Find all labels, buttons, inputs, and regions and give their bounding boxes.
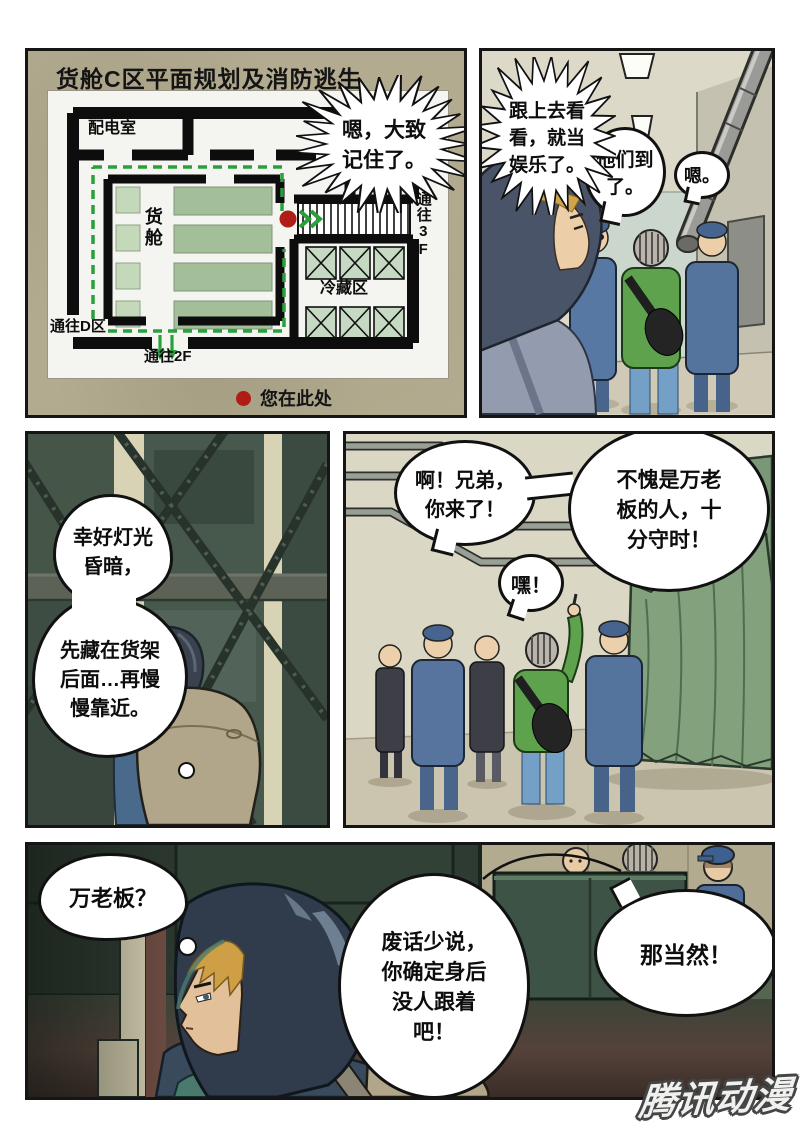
comic-page: 货舱C区平面规划及消防逃生 (0, 0, 800, 1132)
panel-meeting: 啊！兄弟，你来了！ 不愧是万老板的人，十分守时！ 嘿！ (343, 431, 775, 828)
label-cold-zone: 冷藏区 (320, 281, 368, 298)
panel-hallway: 跟上去看看，就当娱乐了。 他们到了。 嗯。 (479, 48, 775, 418)
speech-burst-text: 嗯，大致记住了。 (296, 75, 467, 213)
speech-bubble-of-course: 那当然！ (594, 889, 775, 1017)
label-to-d-zone: 通往D区 (48, 319, 108, 335)
panel-dark-approach: 万老板？ 废话少说，你确定身后没人跟着吧！ 那当然！ (25, 842, 775, 1100)
label-cargo-hold: 货舱 (143, 207, 162, 249)
speech-bubble-punctual: 不愧是万老板的人，十分守时！ (568, 431, 770, 592)
label-power-room: 配电室 (88, 121, 136, 138)
thought-bubble-hide: 先藏在货架后面…再慢慢靠近。 (32, 596, 188, 758)
cloud-junction-patch (72, 590, 136, 610)
speech-bubble-hey: 嘿！ (498, 554, 564, 612)
thought-trail-circle (178, 937, 197, 956)
panel-warehouse-shelves: 幸好灯光昏暗， 先藏在货架后面…再慢慢靠近。 (25, 431, 330, 828)
cargo-shelves (116, 187, 272, 329)
you-are-here-marker (280, 211, 297, 228)
thought-trail-circle (178, 762, 195, 779)
red-marker-icon (236, 391, 251, 406)
tencent-comics-watermark: 腾讯动漫 (637, 1064, 795, 1126)
panel-floor-plan: 货舱C区平面规划及消防逃生 (25, 48, 467, 418)
label-to-2f: 通往2F (144, 349, 192, 365)
speech-bubble-brother: 啊！兄弟，你来了！ (394, 440, 536, 546)
speech-bubble-no-nonsense: 废话少说，你确定身后没人跟着吧！ (338, 873, 530, 1099)
speech-burst-follow: 跟上去看看，就当娱乐了。 (479, 57, 616, 215)
bubble-connector (525, 472, 575, 501)
speech-burst-follow-text: 跟上去看看，就当娱乐了。 (479, 57, 616, 215)
speech-burst-memorized: 嗯，大致记住了。 (296, 75, 467, 213)
legend-text: 您在此处 (260, 385, 332, 411)
speech-bubble-hmm: 嗯。 (674, 151, 730, 199)
map-legend: 您在此处 (236, 385, 332, 411)
bald-head (563, 848, 589, 874)
